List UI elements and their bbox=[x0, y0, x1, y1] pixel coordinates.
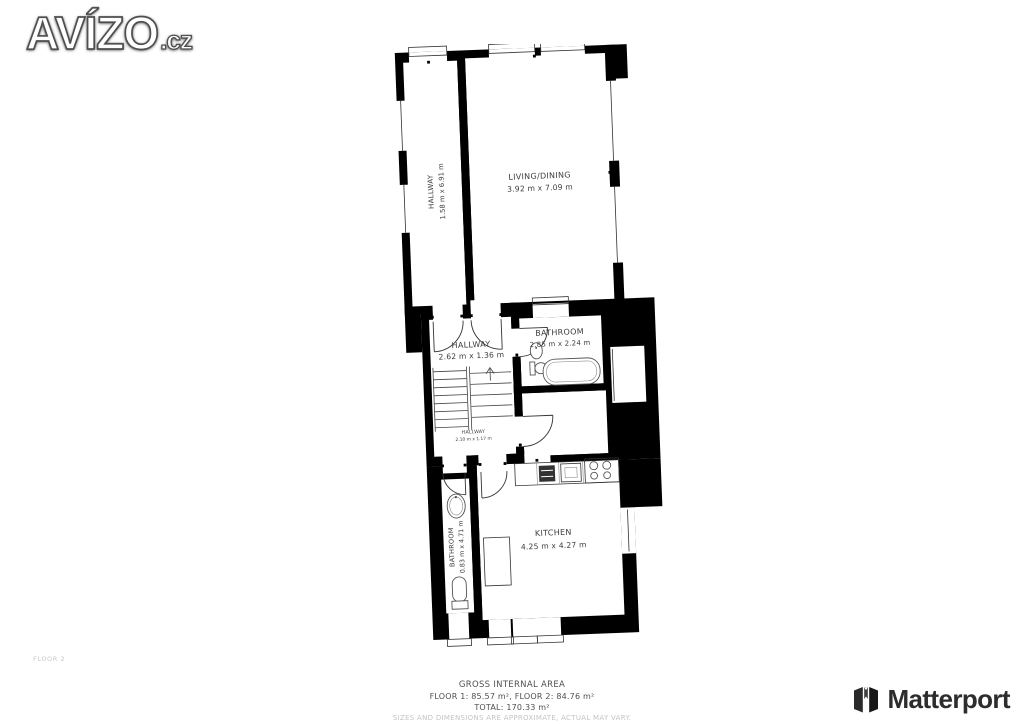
kitchen-sink bbox=[539, 465, 556, 482]
toilet bbox=[452, 577, 467, 603]
avizo-logo-tld: .cz bbox=[160, 27, 192, 53]
matterport-logo-icon bbox=[852, 686, 880, 714]
room-name: HALLWAY bbox=[451, 340, 490, 350]
room-name: HALLWAY bbox=[426, 174, 435, 209]
footer-disclaimer: SIZES AND DIMENSIONS ARE APPROXIMATE, AC… bbox=[0, 714, 1024, 722]
matterport-logo-text: Matterport bbox=[887, 684, 1010, 715]
room-name: BATHROOM bbox=[535, 327, 584, 338]
avizo-logo: AVÍZO .cz bbox=[26, 10, 192, 56]
room-name: KITCHEN bbox=[535, 528, 572, 538]
room-name: HALLWAY bbox=[462, 429, 486, 436]
floor-number-label: FLOOR 2 bbox=[33, 655, 65, 663]
matterport-branding: Matterport bbox=[852, 684, 1010, 715]
room-name: BATHROOM bbox=[447, 527, 457, 567]
floor-plan: HALLWAY 1.58 m x 6.91 m LIVING/DINING 3.… bbox=[392, 44, 664, 650]
avizo-logo-text: AVÍZO bbox=[26, 10, 158, 56]
